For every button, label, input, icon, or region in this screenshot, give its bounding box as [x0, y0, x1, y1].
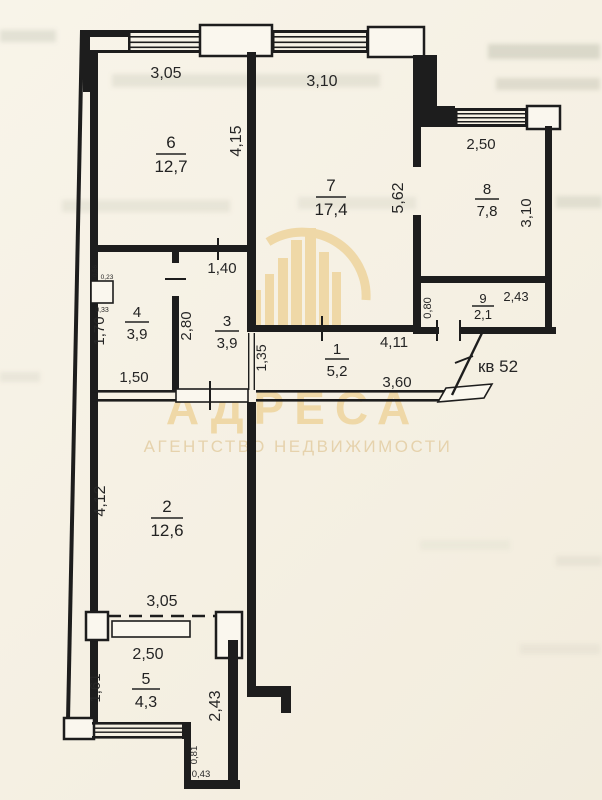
svg-text:3: 3	[223, 313, 231, 330]
svg-text:5: 5	[142, 671, 151, 688]
dim-room5-left: 1,61	[87, 673, 104, 702]
dim-room5-right: 2,43	[207, 690, 224, 721]
room-label-2: 2 12,6	[150, 497, 183, 540]
vent-shaft	[91, 281, 113, 303]
dim-room5-top: 2,50	[132, 646, 163, 663]
room-label-4: 4 3,9	[125, 304, 149, 343]
dim-window6: 3,05	[150, 65, 181, 82]
dim-room2-width: 3,05	[146, 593, 177, 610]
dim-room9-width: 2,43	[503, 289, 528, 304]
dim-room4-width: 1,50	[119, 369, 148, 386]
svg-text:8: 8	[483, 181, 491, 198]
room-label-9: 9 2,1	[472, 291, 494, 322]
dim-room8-width: 2,50	[466, 136, 495, 153]
room-label-7: 7 17,4	[314, 176, 347, 219]
dim-room6-depth: 4,15	[228, 125, 245, 156]
svg-text:5,2: 5,2	[327, 363, 348, 380]
window-room6	[128, 30, 202, 53]
svg-text:4,3: 4,3	[135, 694, 157, 711]
dim-room8-depth: 3,10	[518, 198, 535, 227]
room-label-3: 3 3,9	[215, 313, 239, 352]
watermark-tagline: АГЕНТСТВО НЕДВИЖИМОСТИ	[144, 437, 453, 456]
dim-window7: 3,10	[306, 73, 337, 90]
svg-text:6: 6	[166, 133, 175, 152]
dim-hall-left: 1,35	[253, 344, 269, 371]
outer-left-wall	[66, 30, 84, 720]
entrance-door-leaf	[438, 384, 492, 402]
room2-room5-boundary	[86, 612, 242, 658]
dim-step-depth: 0,81	[189, 746, 200, 765]
room-label-5: 5 4,3	[132, 671, 160, 711]
dim-room9-height: 0,80	[422, 297, 434, 318]
dim-shaft-bottom: 0,33	[95, 307, 109, 314]
svg-text:7,8: 7,8	[477, 203, 498, 220]
svg-text:4: 4	[133, 304, 141, 321]
dim-room3-depth: 2,80	[178, 311, 195, 340]
dim-room7-depth: 5,62	[390, 182, 407, 213]
svg-text:7: 7	[326, 176, 335, 195]
svg-text:12,7: 12,7	[154, 157, 187, 176]
dim-hall-width: 4,11	[380, 334, 408, 351]
agency-logo-icon	[252, 228, 366, 332]
outer-right-wall	[545, 126, 552, 334]
dim-shaft-top: 0,23	[101, 274, 114, 281]
dim-room2-depth: 4,12	[92, 485, 109, 516]
svg-text:2: 2	[162, 497, 171, 516]
svg-text:3,9: 3,9	[217, 335, 238, 352]
scanned-floorplan-page: АДРЕСА АГЕНТСТВО НЕДВИЖИМОСТИ	[0, 0, 602, 800]
dim-room4-depth: 1,70	[91, 316, 108, 345]
svg-text:3,9: 3,9	[127, 326, 148, 343]
top-pier-1	[200, 25, 272, 56]
window-room7	[272, 30, 369, 53]
top-pier-2	[368, 27, 424, 57]
dim-step-width: 0,43	[192, 769, 211, 780]
svg-text:1: 1	[333, 341, 341, 358]
svg-text:17,4: 17,4	[314, 200, 347, 219]
floor-plan-canvas: АДРЕСА АГЕНТСТВО НЕДВИЖИМОСТИ	[0, 0, 602, 800]
room-label-8: 8 7,8	[475, 181, 499, 220]
dim-shaft-side: 0,56	[93, 265, 99, 277]
svg-text:9: 9	[479, 291, 486, 306]
apartment-note: кв 52	[478, 357, 518, 376]
svg-text:2,1: 2,1	[474, 307, 492, 322]
room-label-1: 1 5,2	[325, 341, 349, 380]
top-pier-3	[527, 106, 560, 129]
room-label-6: 6 12,7	[154, 133, 187, 176]
dim-hall-bottom: 3,60	[382, 374, 411, 391]
svg-text:12,6: 12,6	[150, 521, 183, 540]
dim-room3-width: 1,40	[207, 260, 236, 277]
